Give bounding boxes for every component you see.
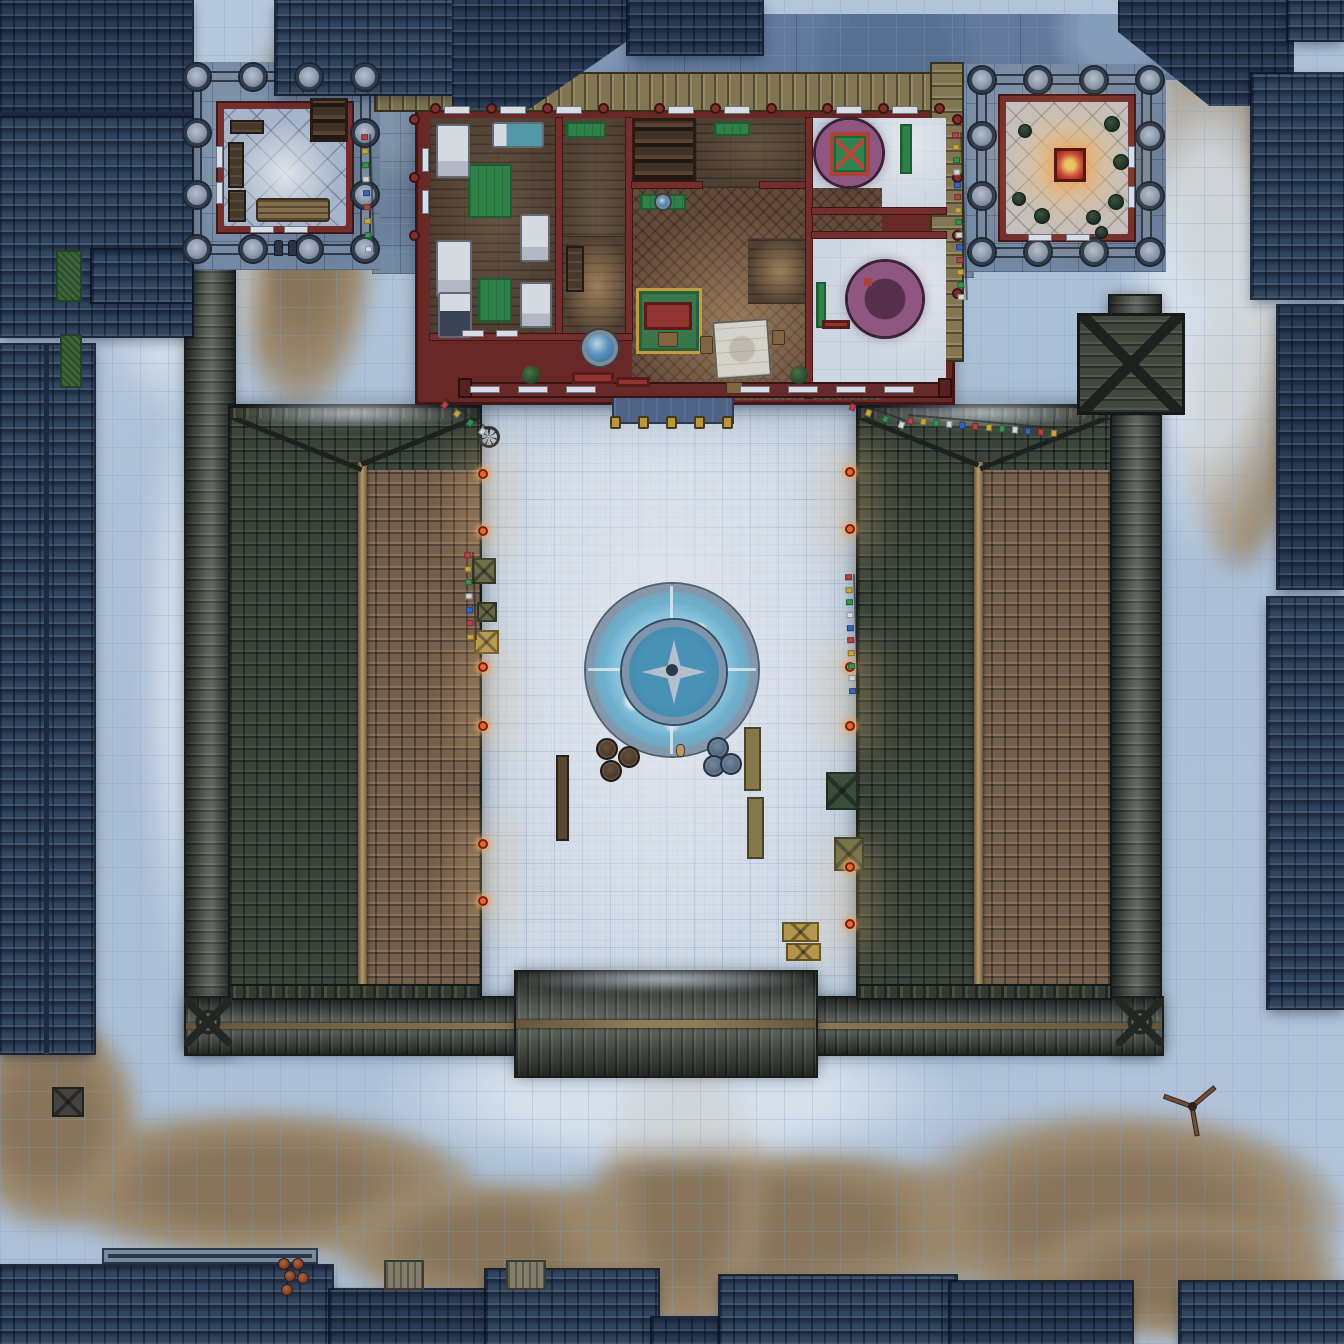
city-rooftop [1288, 0, 1344, 40]
battle-map [0, 0, 1344, 1344]
bed [520, 282, 552, 328]
city-rooftop [720, 1276, 956, 1344]
north-gate-step [612, 394, 734, 424]
left-wing-eave [230, 984, 480, 998]
bed-dark [438, 292, 472, 338]
city-rooftop [92, 250, 192, 302]
south-gate-ridge [516, 1020, 816, 1028]
left-wing-east-slope [362, 470, 480, 990]
red-table [644, 302, 692, 330]
fountain-center [666, 664, 678, 676]
chair [772, 330, 785, 345]
bed [436, 124, 470, 178]
city-rooftop [628, 0, 762, 54]
map-table [712, 318, 772, 380]
windmill-arm [1163, 1094, 1193, 1109]
porch-bench [616, 377, 650, 387]
globe [582, 330, 618, 366]
roof-snow [240, 398, 470, 428]
right-wing-east-slope [978, 470, 1110, 990]
desk [566, 246, 584, 292]
right-wing-ridge [974, 462, 983, 992]
city-rooftop [0, 0, 192, 120]
city-rooftop [0, 345, 94, 1053]
yard-wall [104, 1250, 316, 1262]
low-bench [822, 320, 850, 329]
tatami-mat [478, 278, 512, 322]
windmill-arm [1190, 1085, 1216, 1108]
city-rooftop [0, 118, 192, 336]
left-wing-roof [230, 406, 480, 998]
wall-corner-finial [184, 998, 232, 1046]
interior-wall [626, 118, 632, 334]
glowing-shrine [1054, 148, 1086, 182]
city-rooftop [1268, 598, 1344, 1008]
tatami-mat [714, 122, 750, 136]
east-gatehouse [1080, 316, 1182, 412]
south-porch-railing [462, 382, 952, 398]
city-rooftop [486, 1270, 658, 1344]
interior-wall [556, 118, 562, 334]
tatami-mat [900, 124, 912, 174]
right-wing-eave [858, 984, 1110, 998]
interior-wall [806, 118, 812, 398]
chair [658, 332, 678, 347]
room-mid-east [748, 238, 812, 304]
bed [436, 240, 472, 298]
frozen-fountain [586, 584, 758, 756]
city-rooftop [1278, 306, 1344, 588]
porch-bench [572, 372, 614, 384]
west-wall [186, 254, 234, 1054]
right-wing-roof [858, 406, 1110, 998]
bath-tub-cover [830, 132, 870, 176]
roof-snow [868, 398, 1098, 428]
interior-wall [760, 182, 812, 188]
tatami-mat [468, 164, 512, 218]
cabinet [228, 190, 246, 222]
city-rooftop [950, 1282, 1132, 1344]
roof-ridge [44, 345, 49, 1053]
left-wing-west-slope [230, 470, 362, 990]
chair [726, 382, 743, 394]
wall-corner-finial [1116, 998, 1164, 1046]
left-wing-ridge [358, 462, 367, 992]
windmill-hub [1188, 1102, 1197, 1111]
chair [700, 336, 713, 354]
city-rooftop [1180, 1282, 1344, 1344]
bed [520, 214, 550, 262]
bath-tub [848, 262, 922, 336]
interior-wall [632, 182, 702, 188]
tatami-mat [566, 122, 606, 138]
interior-wall [812, 232, 946, 238]
left-tower-stairs [310, 98, 348, 142]
log-pile [256, 198, 330, 222]
city-rooftop [1252, 74, 1344, 298]
right-wing-west-slope [858, 470, 978, 990]
city-rooftop [0, 1266, 332, 1344]
water-bowl [656, 195, 670, 209]
stairwell [632, 118, 696, 182]
tool-rack [230, 120, 264, 134]
city-rooftop [276, 0, 462, 94]
bath-tub-cover [864, 278, 872, 286]
bed-teal [492, 122, 544, 148]
roof-ridge [0, 112, 192, 117]
roof-snow [520, 966, 810, 992]
interior-wall [812, 208, 946, 214]
cabinet [228, 142, 244, 188]
